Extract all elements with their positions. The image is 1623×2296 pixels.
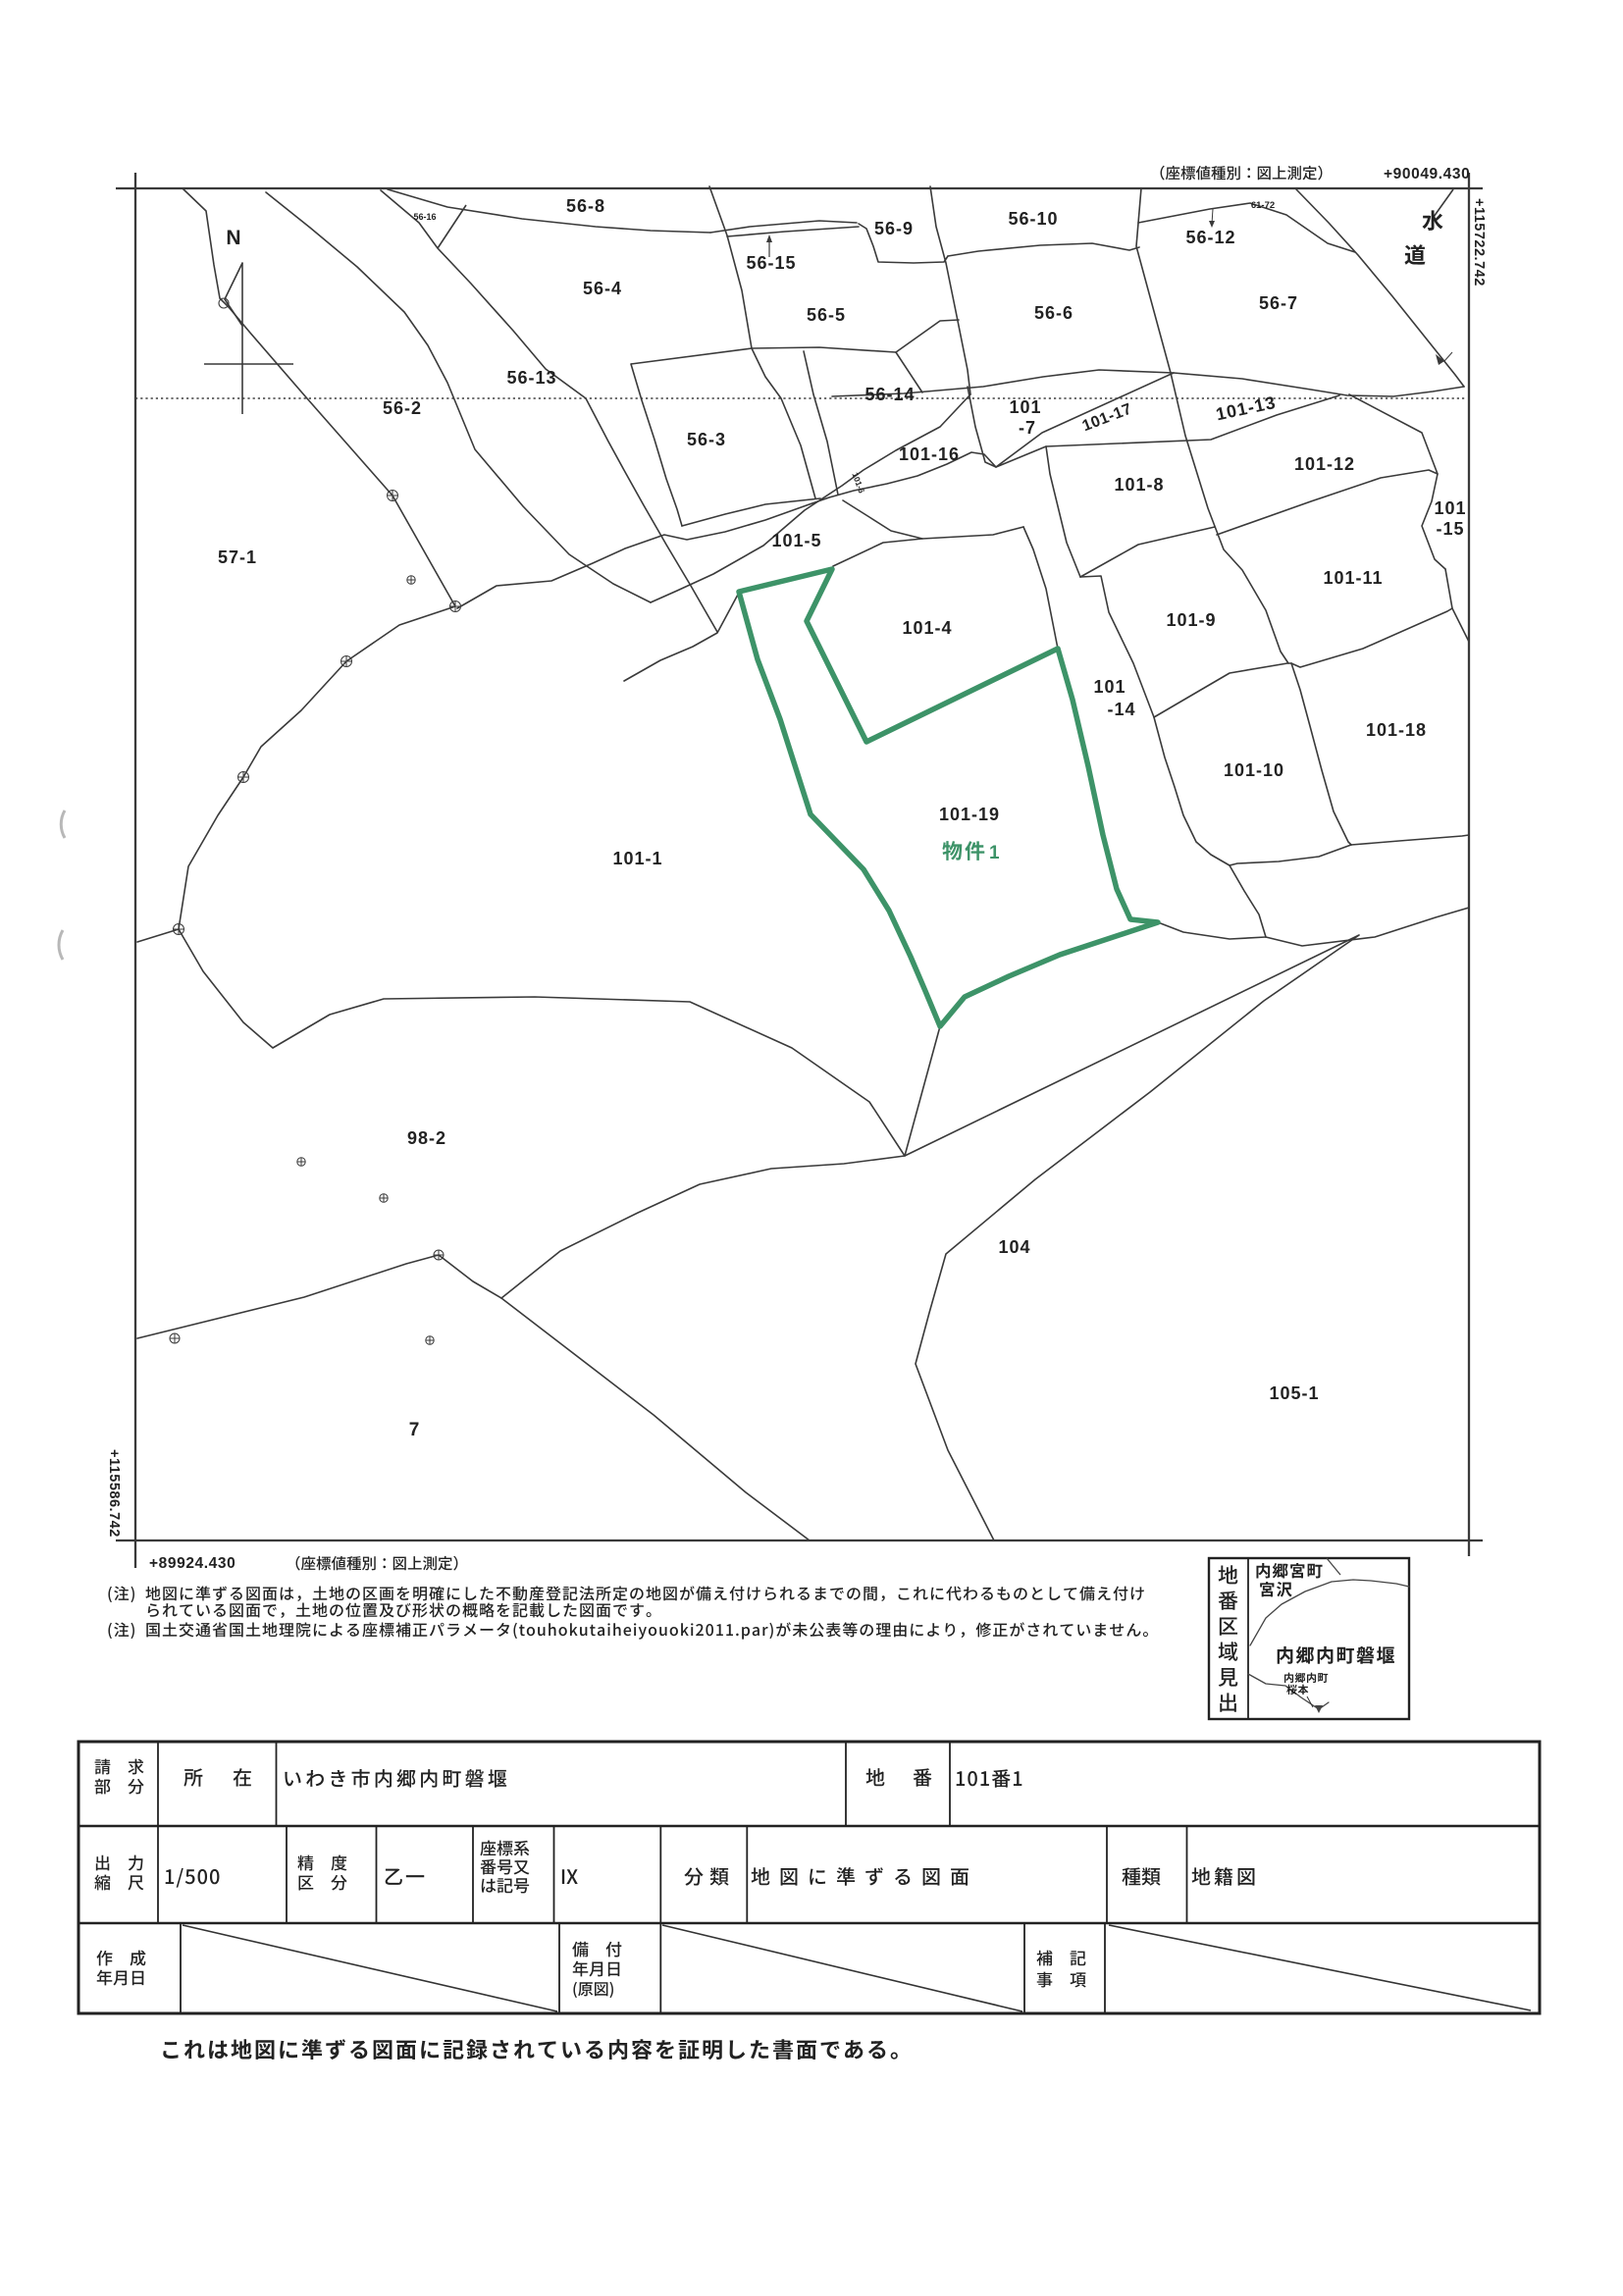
- svg-text:56-13: 56-13: [506, 368, 556, 388]
- svg-text:56-2: 56-2: [383, 398, 422, 418]
- svg-text:104: 104: [998, 1237, 1030, 1257]
- svg-text:56-12: 56-12: [1185, 228, 1235, 247]
- svg-text:101: 101: [1009, 397, 1041, 417]
- svg-text:56-10: 56-10: [1008, 209, 1058, 229]
- svg-text:+90049.430: +90049.430: [1384, 166, 1470, 183]
- svg-text:61-72: 61-72: [1251, 200, 1275, 211]
- svg-text:101-8: 101-8: [1114, 475, 1164, 495]
- svg-text:56-9: 56-9: [874, 219, 914, 238]
- svg-text:56-6: 56-6: [1034, 303, 1073, 323]
- svg-text:1: 1: [989, 843, 1000, 863]
- svg-text:101-1: 101-1: [612, 849, 662, 868]
- svg-text:-14: -14: [1107, 700, 1135, 719]
- svg-text:-7: -7: [1019, 418, 1036, 438]
- svg-text:+89924.430: +89924.430: [149, 1555, 236, 1572]
- svg-text:56-4: 56-4: [583, 279, 622, 298]
- svg-text:56-5: 56-5: [807, 305, 846, 325]
- svg-text:98-2: 98-2: [407, 1128, 446, 1148]
- svg-text:101-11: 101-11: [1323, 568, 1383, 588]
- svg-text:56-14: 56-14: [864, 385, 915, 404]
- svg-text:56-16: 56-16: [413, 212, 436, 222]
- svg-text:56-3: 56-3: [687, 430, 726, 449]
- svg-text:101-18: 101-18: [1366, 720, 1427, 740]
- svg-text:101-19: 101-19: [939, 805, 1000, 824]
- svg-text:56-8: 56-8: [566, 196, 605, 216]
- svg-text:101: 101: [1093, 677, 1126, 697]
- svg-text:101-4: 101-4: [902, 618, 952, 638]
- svg-text:56-7: 56-7: [1259, 293, 1298, 313]
- svg-text:+115722.742: +115722.742: [1471, 198, 1487, 287]
- svg-text:101: 101: [1434, 498, 1466, 518]
- svg-text:101-10: 101-10: [1224, 760, 1284, 780]
- svg-text:N: N: [226, 227, 240, 249]
- svg-text:57-1: 57-1: [218, 548, 257, 567]
- svg-text:105-1: 105-1: [1269, 1383, 1319, 1403]
- svg-text:101-16: 101-16: [899, 444, 960, 464]
- svg-text:+115586.742: +115586.742: [106, 1449, 122, 1538]
- svg-text:56-15: 56-15: [746, 253, 796, 273]
- svg-text:101-12: 101-12: [1294, 454, 1355, 474]
- svg-text:101-9: 101-9: [1166, 610, 1216, 630]
- svg-text:101-5: 101-5: [771, 531, 821, 550]
- svg-text:7: 7: [409, 1420, 420, 1440]
- svg-text:-15: -15: [1436, 519, 1464, 539]
